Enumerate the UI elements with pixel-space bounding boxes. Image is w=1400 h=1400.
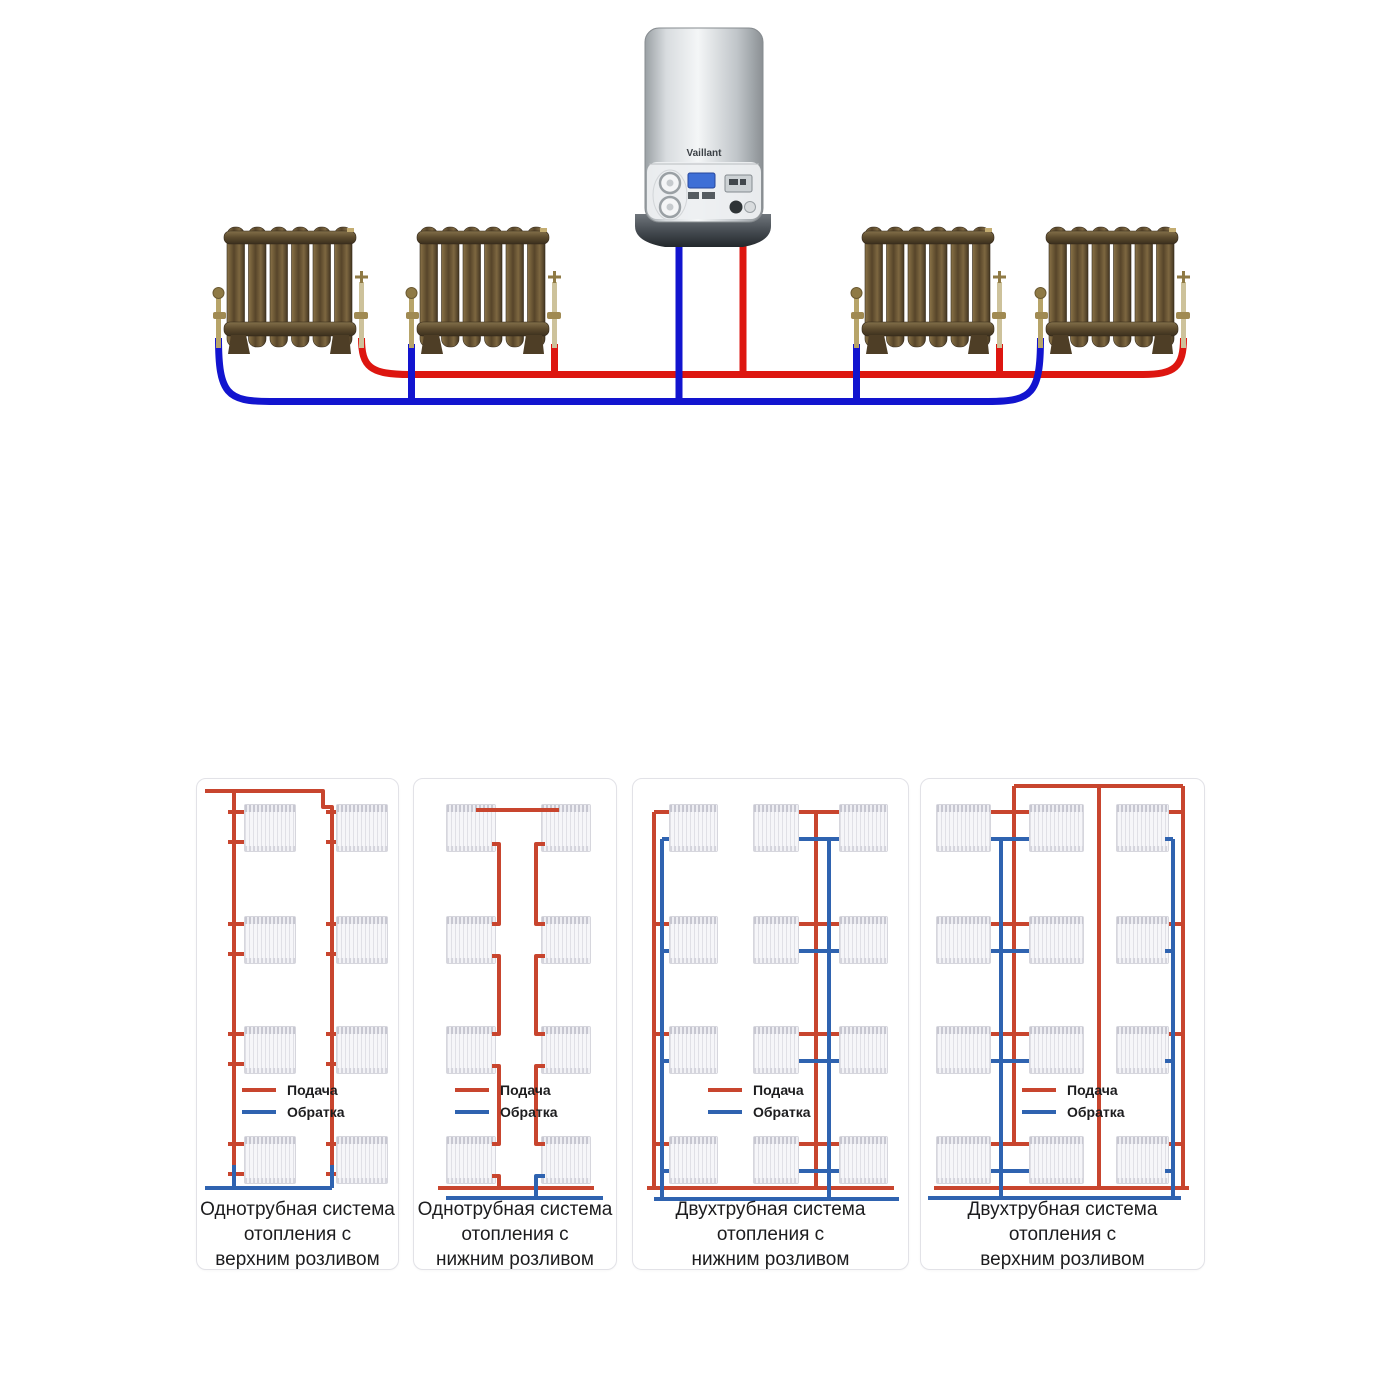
pipe-scheme (633, 779, 908, 1269)
pipe-scheme (921, 779, 1204, 1269)
radiator (446, 804, 496, 852)
legend-supply-label: Подача (1067, 1082, 1118, 1098)
radiator (753, 1026, 799, 1074)
legend-supply-row: Подача (1021, 1079, 1125, 1101)
radiator (1029, 1136, 1084, 1184)
cast-iron-radiator-1 (213, 227, 368, 354)
legend-return-label: Обратка (500, 1104, 558, 1120)
radiator (1116, 1026, 1169, 1074)
panel-one-pipe-top: Подача Обратка Однотрубная система отопл… (196, 778, 399, 1270)
boiler-brand-logo: Vaillant (686, 148, 722, 159)
legend-supply-label: Подача (287, 1082, 338, 1098)
boiler-button (745, 202, 756, 213)
radiator (541, 1026, 591, 1074)
wall-boiler: Vaillant (635, 28, 771, 247)
radiator (839, 804, 888, 852)
panel-two-pipe-top: Подача Обратка Двухтрубная система отопл… (920, 778, 1205, 1270)
radiator (336, 1026, 388, 1074)
legend-return-row: Обратка (454, 1101, 558, 1123)
legend-return-label: Обратка (1067, 1104, 1125, 1120)
legend-return-row: Обратка (241, 1101, 345, 1123)
boiler-radiator-piping-diagram: Vaillant (0, 0, 1400, 470)
radiator (244, 916, 296, 964)
supply-lines (438, 810, 594, 1188)
radiator (753, 804, 799, 852)
cast-iron-radiator-4 (1035, 227, 1190, 354)
radiator (446, 916, 496, 964)
legend-return-row: Обратка (707, 1101, 811, 1123)
radiator (541, 916, 591, 964)
radiator (669, 1026, 718, 1074)
legend: Подача Обратка (1021, 1079, 1125, 1123)
radiator (1029, 1026, 1084, 1074)
panel-two-pipe-bottom: Подача Обратка Двухтрубная система отопл… (632, 778, 909, 1270)
radiator (336, 1136, 388, 1184)
panel-label (688, 192, 699, 199)
radiator (1029, 916, 1084, 964)
radiator (244, 1136, 296, 1184)
legend-supply-row: Подача (241, 1079, 345, 1101)
radiator (936, 1136, 991, 1184)
legend-return-row: Обратка (1021, 1101, 1125, 1123)
panel-caption: Однотрубная система отопления с нижним р… (414, 1197, 616, 1272)
radiator (669, 1136, 718, 1184)
cast-iron-radiator-3 (851, 227, 1006, 354)
lcd-digits (740, 179, 746, 185)
radiator (669, 804, 718, 852)
radiator (541, 1136, 591, 1184)
panel-caption: Двухтрубная система отопления с верхним … (921, 1197, 1204, 1272)
radiator (669, 916, 718, 964)
radiator (839, 1136, 888, 1184)
boiler-button (730, 201, 743, 214)
boiler-display-blue (688, 173, 715, 188)
pipe-scheme (414, 779, 616, 1269)
legend: Подача Обратка (707, 1079, 811, 1123)
knob-center (667, 204, 674, 211)
panel-caption: Однотрубная система отопления с верхним … (197, 1197, 398, 1272)
radiator (1116, 1136, 1169, 1184)
cast-iron-radiator-2 (406, 227, 561, 354)
radiator (1116, 804, 1169, 852)
supply-lines (647, 812, 894, 1188)
radiator (839, 1026, 888, 1074)
lcd-digits (729, 179, 738, 185)
radiator (336, 804, 388, 852)
radiator (1116, 916, 1169, 964)
radiator (936, 916, 991, 964)
legend-supply-label: Подача (753, 1082, 804, 1098)
legend-supply-label: Подача (500, 1082, 551, 1098)
radiator (244, 804, 296, 852)
legend-supply-row: Подача (454, 1079, 558, 1101)
radiator (753, 1136, 799, 1184)
radiator (753, 916, 799, 964)
legend-supply-row: Подача (707, 1079, 811, 1101)
radiator (446, 1136, 496, 1184)
panel-one-pipe-bottom: Подача Обратка Однотрубная система отопл… (413, 778, 617, 1270)
radiator (336, 916, 388, 964)
panel-label (702, 192, 715, 199)
legend-return-label: Обратка (287, 1104, 345, 1120)
pipe-scheme (197, 779, 398, 1269)
radiator (839, 916, 888, 964)
radiator (936, 804, 991, 852)
radiator (446, 1026, 496, 1074)
heating-systems-diagram-page: Vaillant (0, 0, 1400, 1400)
legend: Подача Обратка (241, 1079, 345, 1123)
radiator (244, 1026, 296, 1074)
radiator (541, 804, 591, 852)
knob-center (667, 180, 674, 187)
radiator (936, 1026, 991, 1074)
legend: Подача Обратка (454, 1079, 558, 1123)
panel-caption: Двухтрубная система отопления с нижним р… (633, 1197, 908, 1272)
radiator (1029, 804, 1084, 852)
legend-return-label: Обратка (753, 1104, 811, 1120)
